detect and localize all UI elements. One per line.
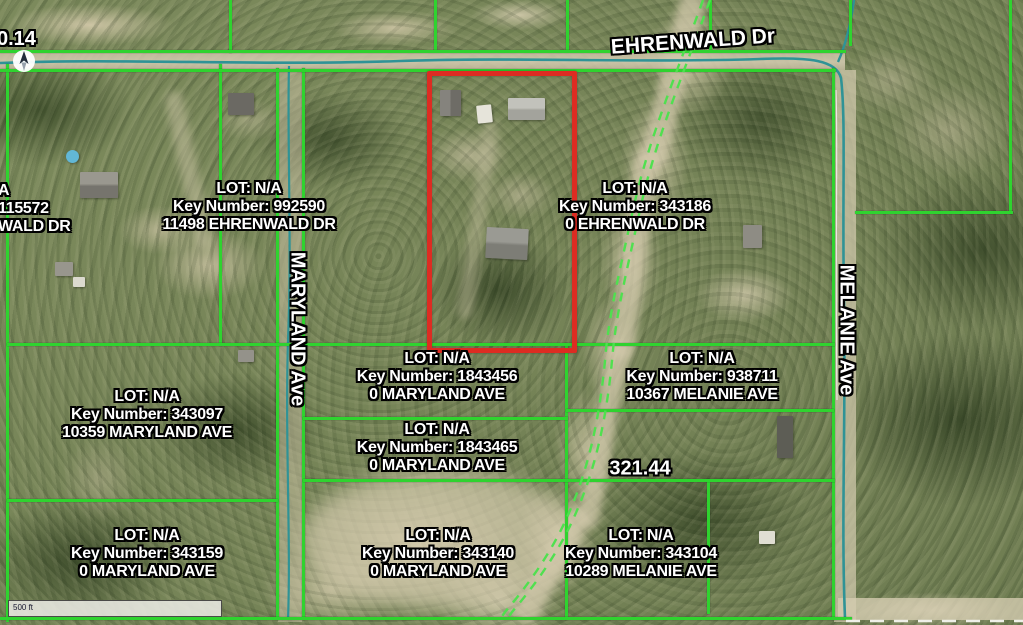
parcel-label-343097: LOT: N/A Key Number: 343097 10359 MARYLA… — [62, 388, 232, 442]
parcel-lot: LOT: N/A — [362, 527, 514, 545]
parcel-map[interactable]: EHRENWALD Dr MARYLAND Ave MELANIE Ave 0.… — [0, 0, 1023, 625]
parcel-lot: LOT: N/A — [62, 388, 232, 406]
parcel-lot: LOT: N/A — [626, 350, 777, 368]
parcel-label-cut-left: A 115572 WALD DR — [0, 182, 71, 236]
parcel-address: 10359 MARYLAND AVE — [62, 424, 232, 442]
parcel-address: 0 MARYLAND AVE — [357, 457, 518, 475]
parcel-lot: LOT: N/A — [162, 180, 335, 198]
street-label-melanie: MELANIE Ave — [835, 265, 858, 396]
parcel-key: Key Number: 1843465 — [357, 439, 518, 457]
selected-parcel-outline[interactable] — [427, 71, 577, 353]
parcel-label-1843465: LOT: N/A Key Number: 1843465 0 MARYLAND … — [357, 421, 518, 475]
parcel-lot: LOT: N/A — [357, 421, 518, 439]
parcel-address: 0 MARYLAND AVE — [357, 386, 518, 404]
parcel-key: Key Number: 938711 — [626, 368, 777, 386]
compass-icon — [8, 46, 40, 78]
parcel-key: Key Number: 343159 — [71, 545, 223, 563]
parcel-key: Key Number: 343140 — [362, 545, 514, 563]
parcel-key: Key Number: 992590 — [162, 198, 335, 216]
parcel-address: 0 EHRENWALD DR — [559, 216, 711, 234]
scale-bar-label: 500 ft — [13, 603, 33, 612]
parcel-key: Key Number: 1843456 — [357, 368, 518, 386]
parcel-key: 115572 — [0, 200, 71, 218]
scale-bar: 500 ft — [8, 600, 222, 617]
parcel-key: Key Number: 343186 — [559, 198, 711, 216]
parcel-label-938711: LOT: N/A Key Number: 938711 10367 MELANI… — [626, 350, 777, 404]
parcel-lot: A — [0, 182, 71, 200]
parcel-address: WALD DR — [0, 218, 71, 236]
parcel-address: 11498 EHRENWALD DR — [162, 216, 335, 234]
parcel-lot: LOT: N/A — [565, 527, 717, 545]
parcel-label-343159: LOT: N/A Key Number: 343159 0 MARYLAND A… — [71, 527, 223, 581]
parcel-label-343140: LOT: N/A Key Number: 343140 0 MARYLAND A… — [362, 527, 514, 581]
parcel-address: 10367 MELANIE AVE — [626, 386, 777, 404]
parcel-lot: LOT: N/A — [71, 527, 223, 545]
street-label-maryland: MARYLAND Ave — [286, 252, 309, 406]
parcel-lot: LOT: N/A — [559, 180, 711, 198]
parcel-label-343104: LOT: N/A Key Number: 343104 10289 MELANI… — [565, 527, 717, 581]
parcel-lot: LOT: N/A — [357, 350, 518, 368]
measurement-label: 321.44 — [609, 458, 670, 481]
parcel-address: 10289 MELANIE AVE — [565, 563, 717, 581]
parcel-label-992590: LOT: N/A Key Number: 992590 11498 EHRENW… — [162, 180, 335, 234]
parcel-label-1843456: LOT: N/A Key Number: 1843456 0 MARYLAND … — [357, 350, 518, 404]
parcel-label-343186: LOT: N/A Key Number: 343186 0 EHRENWALD … — [559, 180, 711, 234]
parcel-address: 0 MARYLAND AVE — [362, 563, 514, 581]
parcel-key: Key Number: 343104 — [565, 545, 717, 563]
parcel-key: Key Number: 343097 — [62, 406, 232, 424]
parcel-address: 0 MARYLAND AVE — [71, 563, 223, 581]
